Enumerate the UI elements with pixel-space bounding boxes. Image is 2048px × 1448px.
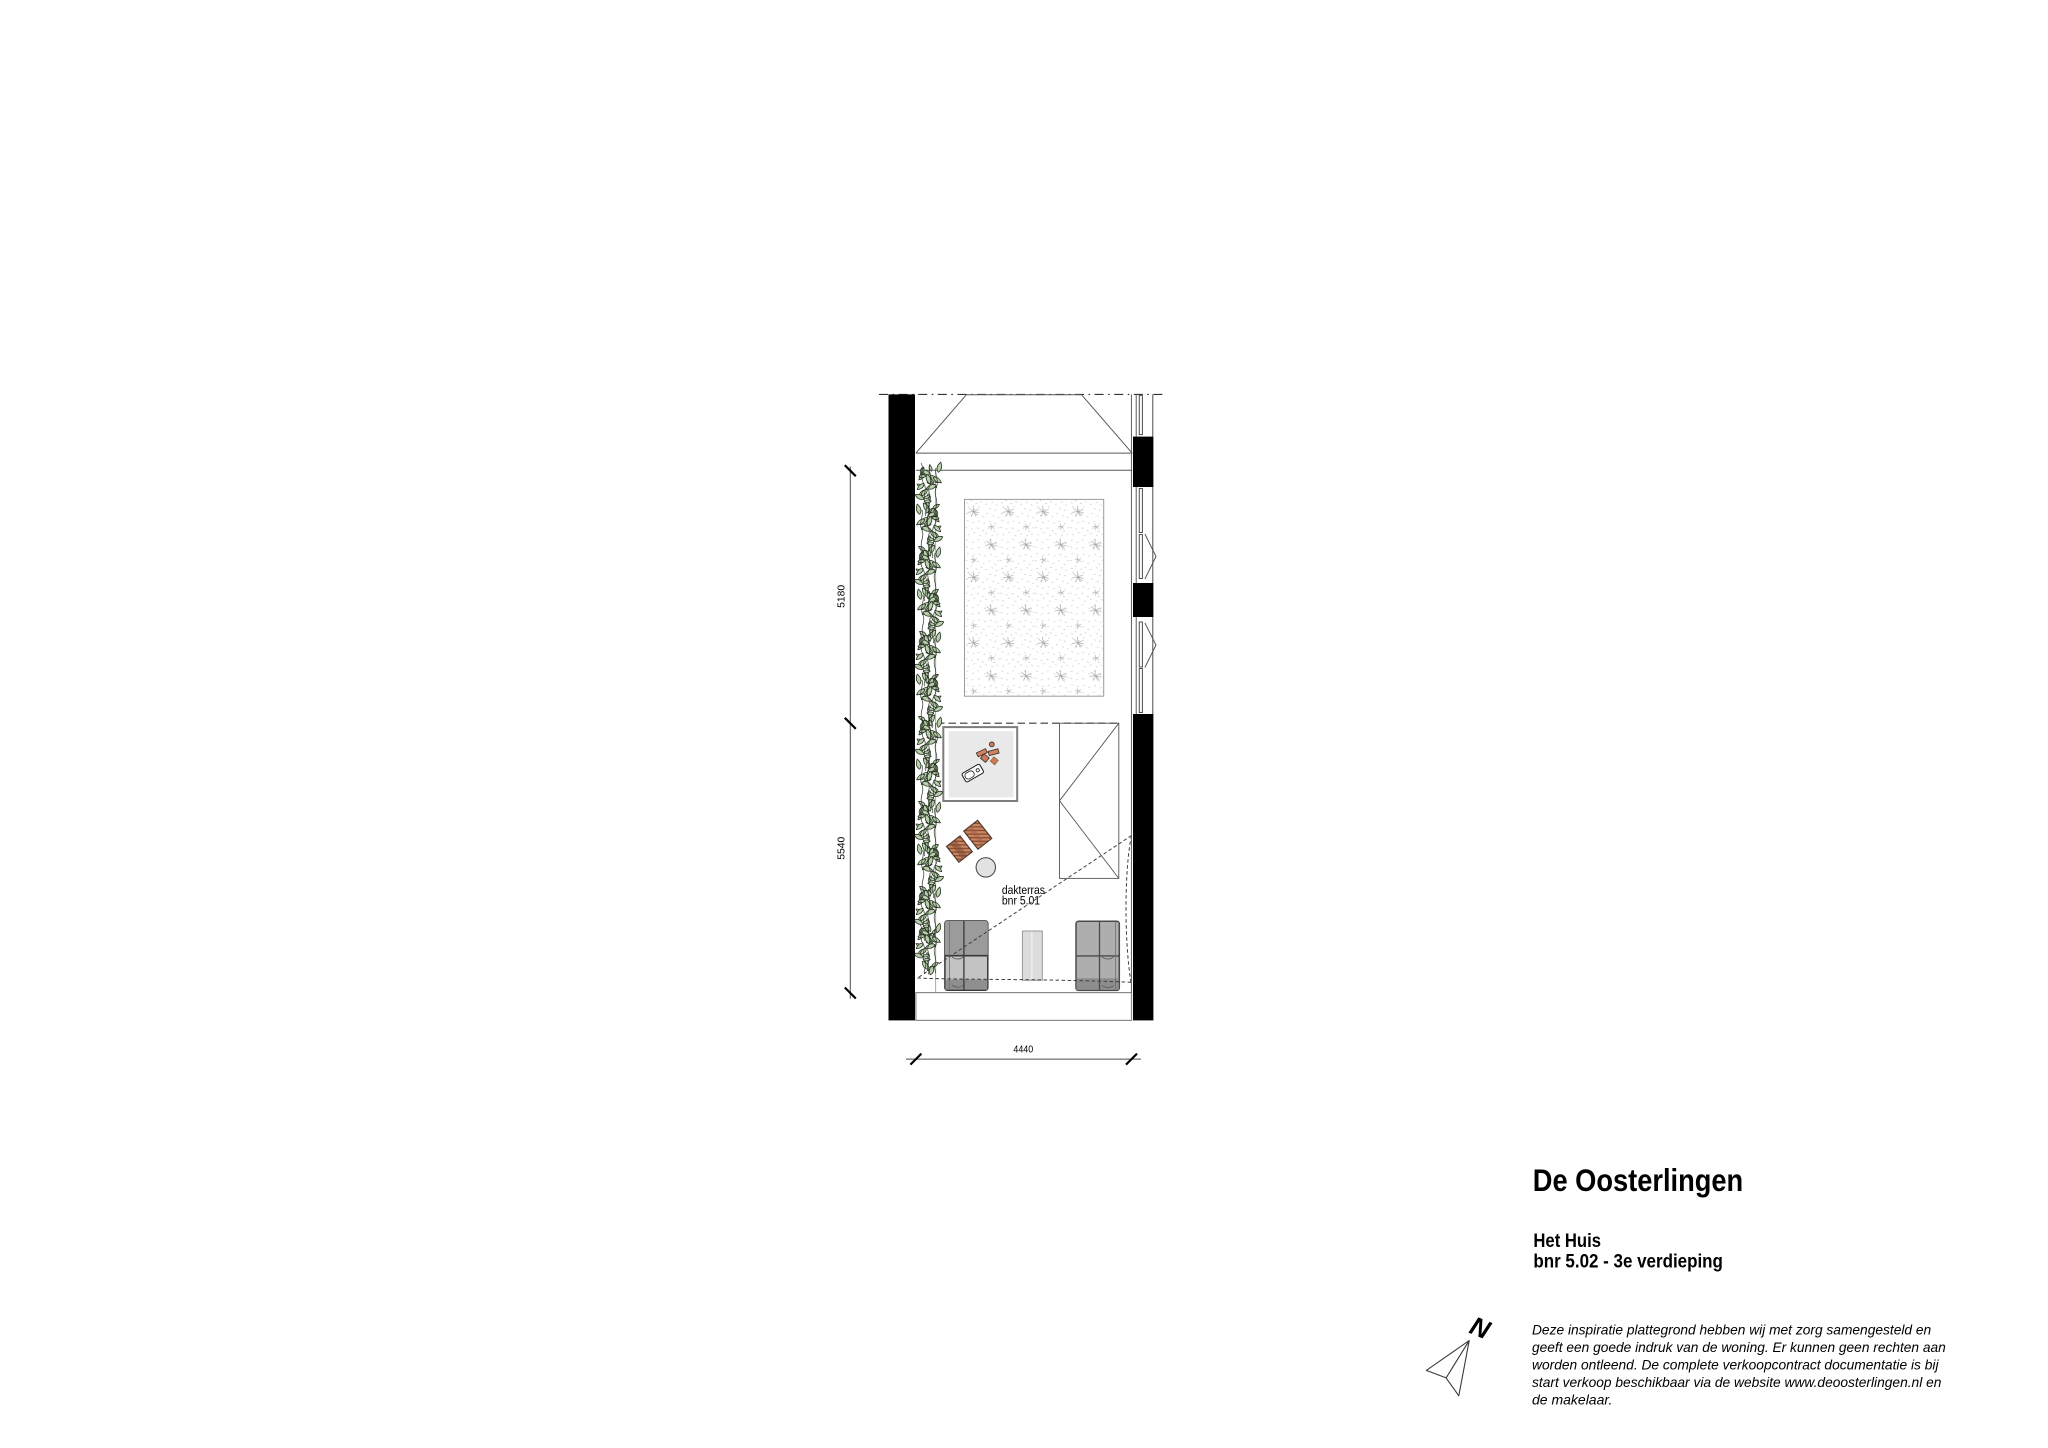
svg-text:5540: 5540 xyxy=(837,836,848,859)
svg-text:start verkoop beschikbaar via: start verkoop beschikbaar via de website… xyxy=(1532,1374,1942,1390)
svg-text:de makelaar.: de makelaar. xyxy=(1532,1392,1612,1408)
svg-text:Deze inspiratie plattegrond he: Deze inspiratie plattegrond hebben wij m… xyxy=(1532,1322,1931,1338)
svg-text:worden ontleend. De complete v: worden ontleend. De complete verkoopcont… xyxy=(1532,1357,1939,1373)
svg-text:Het Huis: Het Huis xyxy=(1533,1230,1601,1252)
svg-text:bnr 5.02 - 3e verdieping: bnr 5.02 - 3e verdieping xyxy=(1533,1250,1723,1272)
svg-text:De Oosterlingen: De Oosterlingen xyxy=(1533,1163,1743,1198)
svg-text:N: N xyxy=(1466,1310,1496,1345)
svg-text:4440: 4440 xyxy=(1013,1045,1033,1056)
svg-text:geeft een goede indruk van de: geeft een goede indruk van de woning. Er… xyxy=(1532,1339,1946,1355)
svg-text:5180: 5180 xyxy=(837,584,848,607)
